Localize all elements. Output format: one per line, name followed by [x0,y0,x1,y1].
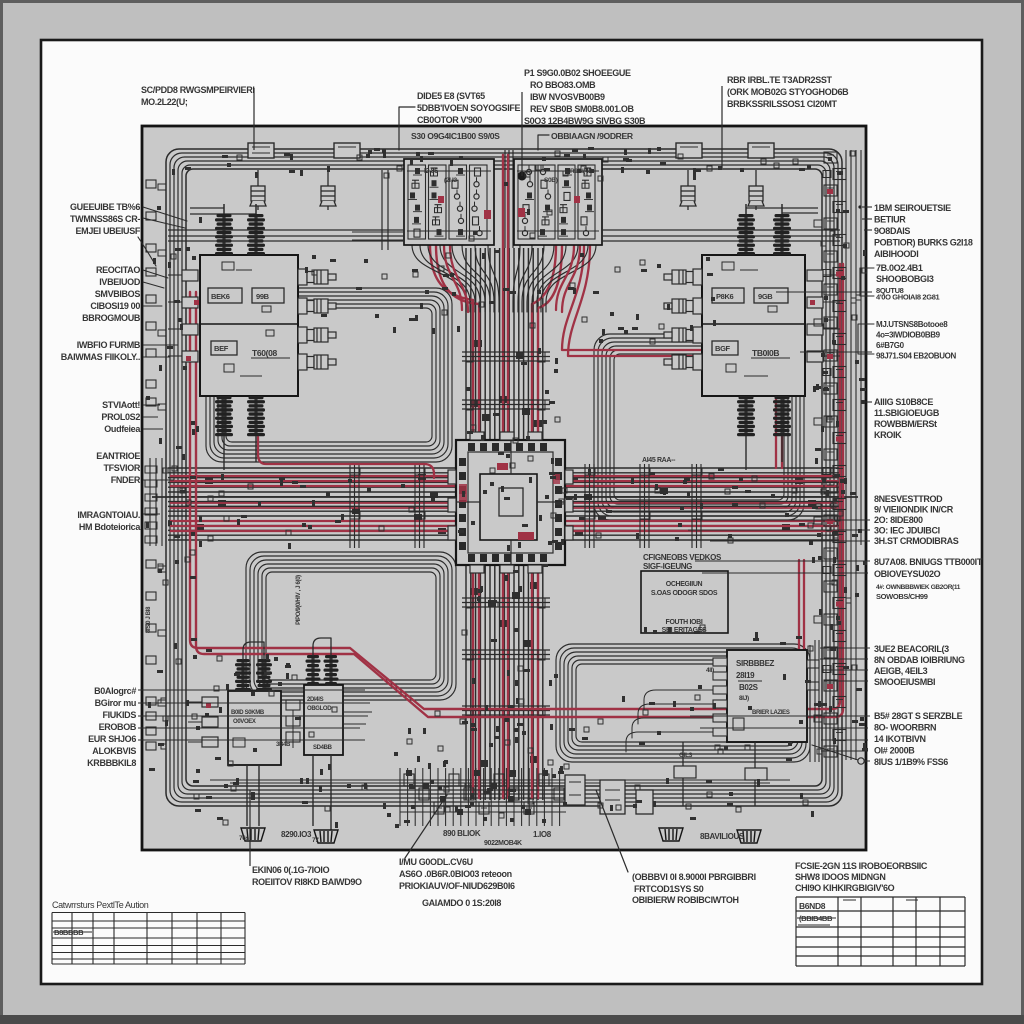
svg-text:14 IKOTBIVN: 14 IKOTBIVN [874,734,926,744]
svg-text:SD4BB: SD4BB [313,745,333,751]
svg-text:BGiror mu: BGiror mu [95,698,136,708]
svg-text:P1 S9G0.0B02 SHOEEGUE: P1 S9G0.0B02 SHOEEGUE [524,68,631,78]
svg-text:AIBIHOODI: AIBIHOODI [874,249,918,259]
svg-text:RO BBO83.OMB: RO BBO83.OMB [530,80,596,90]
svg-text:8NESVESTTROD: 8NESVESTTROD [874,494,943,504]
svg-text:SHOOBOBGI3: SHOOBOBGI3 [876,274,934,284]
svg-text:8IS/0 J BI8: 8IS/0 J BI8 [146,606,152,633]
svg-text:TWMNSS86S CR-: TWMNSS86S CR- [70,214,140,224]
svg-text:2O: 8IDE800: 2O: 8IDE800 [874,515,923,525]
svg-text:TFSVIOR: TFSVIOR [103,463,140,473]
svg-text:IMRAGNTOIAU.: IMRAGNTOIAU. [77,510,140,520]
svg-text:28I19: 28I19 [736,671,755,680]
svg-text:FIUKIDS: FIUKIDS [102,710,136,720]
svg-text:B02S: B02S [739,683,759,692]
svg-text:ROWBBM/ERSt: ROWBBM/ERSt [874,419,937,429]
svg-text:6#B7G0: 6#B7G0 [876,341,905,350]
svg-text:9022MOB4K: 9022MOB4K [484,840,522,847]
svg-text:DIDE5 E8 (SVT65: DIDE5 E8 (SVT65 [417,91,485,101]
svg-text:SIGF-IGEUNG: SIGF-IGEUNG [643,562,692,571]
svg-text:TB0I0B: TB0I0B [752,348,779,358]
svg-text:FOUTH IOBI: FOUTH IOBI [666,619,703,626]
svg-text:BETIUR: BETIUR [874,215,906,225]
svg-text:4#: OWNBBBWIEK GB2OR(11: 4#: OWNBBBWIEK GB2OR(11 [876,584,961,591]
svg-text:8U7A08. BNIUGS TTB000IT: 8U7A08. BNIUGS TTB000IT [874,557,983,567]
svg-text:S0O3 12B4BW9G SIVBG S30B: S0O3 12B4BW9G SIVBG S30B [524,116,646,126]
svg-text:BRIER LAZIES: BRIER LAZIES [752,710,790,716]
svg-text:SOWOBS/CH99: SOWOBS/CH99 [876,592,928,601]
svg-text:2DI4IS: 2DI4IS [307,697,324,703]
svg-text:Oudfeiea: Oudfeiea [104,424,141,434]
svg-text:(ORK MOB02G STYOGHOD6B: (ORK MOB02G STYOGHOD6B [727,87,849,97]
svg-text:EANTRIOE: EANTRIOE [96,451,140,461]
svg-text:9O8DAIS: 9O8DAIS [874,226,910,236]
svg-text:8O- WOORBRN: 8O- WOORBRN [874,723,936,733]
svg-text:Catwrrsturs PextlTe Aution: Catwrrsturs PextlTe Aution [52,900,149,910]
svg-text:11.SBIGIOEUGB: 11.SBIGIOEUGB [874,408,940,418]
svg-text:PIPO/9(0/HIV , J 6(0): PIPO/9(0/HIV , J 6(0) [296,575,302,625]
svg-text:8N OBDAB IOIBRIUNG: 8N OBDAB IOIBRIUNG [874,655,965,665]
svg-text:EKIN06 0(.1G-7IOIO: EKIN06 0(.1G-7IOIO [252,865,330,875]
svg-text:T60(08: T60(08 [252,348,277,358]
svg-text:FRTCOD1SYS S0: FRTCOD1SYS S0 [634,884,704,894]
svg-text:7B.0O2.4B1: 7B.0O2.4B1 [876,263,923,273]
svg-text:BRBKSSRILSSOS1 CI20MT: BRBKSSRILSSOS1 CI20MT [727,99,838,109]
svg-text:I/MU G0ODL.CV6U: I/MU G0ODL.CV6U [399,857,473,867]
svg-text:B6ND8: B6ND8 [799,901,826,911]
svg-text:O0VOEX: O0VOEX [233,719,256,725]
svg-text:8IJ): 8IJ) [739,695,749,702]
svg-text:PROL0S2: PROL0S2 [101,412,140,422]
svg-text:GIL3: GIL3 [679,752,693,759]
svg-text:77: 77 [312,837,319,844]
svg-text:SMVBIBOS: SMVBIBOS [95,289,141,299]
svg-text:I2 86: I2 86 [424,168,438,175]
svg-text:3UE2 BEACORIL(3: 3UE2 BEACORIL(3 [874,644,949,654]
svg-text:AS6O .0B6R.0BIO03 reteoon: AS6O .0B6R.0BIO03 reteoon [399,869,512,879]
svg-text:OBIOVEYSU02O: OBIOVEYSU02O [874,569,941,579]
svg-text:REV SB0B SM0B8.001.OB: REV SB0B SM0B8.001.OB [530,104,635,114]
svg-text:8IUS 1/1B9% FSS6: 8IUS 1/1B9% FSS6 [874,757,948,767]
svg-text:SC/PDD8 RWGSMPEIRVIERI: SC/PDD8 RWGSMPEIRVIERI [141,85,255,95]
svg-text:76s: 76s [239,835,250,842]
svg-text:5DBB'IVOEN SOYOGSIFE: 5DBB'IVOEN SOYOGSIFE [417,103,521,113]
svg-text:KRBBBKIL8: KRBBBKIL8 [87,758,136,768]
svg-text:BEF: BEF [214,344,229,353]
svg-text:CB0OTOR V'900: CB0OTOR V'900 [417,115,482,125]
svg-text:ALOKBVIS: ALOKBVIS [92,746,136,756]
svg-text:P8K6: P8K6 [716,292,734,301]
svg-text:AEIGB, 4EIL3: AEIGB, 4EIL3 [874,666,928,676]
svg-text:OBGLOD: OBGLOD [307,706,332,712]
svg-text:ROEIITOV RI8KD BAIWD9O: ROEIITOV RI8KD BAIWD9O [252,877,362,887]
svg-text:3O: IEC JDUIBCI: 3O: IEC JDUIBCI [874,526,940,536]
svg-text:BGF: BGF [715,344,731,353]
svg-text:1BM SEIROUETSIE: 1BM SEIROUETSIE [874,203,951,213]
svg-text:POBTIOR) BURKS G2I18: POBTIOR) BURKS G2I18 [874,238,973,248]
svg-text:890 BLIOK: 890 BLIOK [443,829,481,838]
svg-text:B5# 28GT S SERZBLE: B5# 28GT S SERZBLE [874,711,963,721]
svg-text:SHW8 IDOOS MIDNGN: SHW8 IDOOS MIDNGN [795,872,886,882]
svg-text:EUR SHJO6: EUR SHJO6 [88,734,136,744]
svg-text:OI# 2000B: OI# 2000B [874,746,915,756]
svg-text:S0B): S0B) [544,177,558,184]
svg-text:REOCITAO: REOCITAO [96,265,140,275]
svg-text:CHI9O KIHKIRGBIGIV'6O: CHI9O KIHKIRGBIGIV'6O [795,883,895,893]
svg-text:CIBOSI19 00: CIBOSI19 00 [90,301,140,311]
svg-text:FNDER: FNDER [111,475,141,485]
svg-text:AIIIG S10B8CE: AIIIG S10B8CE [874,397,933,407]
svg-text:KROIK: KROIK [874,430,902,440]
svg-text:PRIOKIAUV/OF-NIUD629B0I6: PRIOKIAUV/OF-NIUD629B0I6 [399,881,515,891]
svg-text:OBBIAAGN /9ODRER: OBBIAAGN /9ODRER [551,131,634,141]
svg-text:9GB: 9GB [758,292,773,301]
svg-text:SMOOEIUSMBI: SMOOEIUSMBI [874,677,935,687]
svg-text:OCHEGIIUN: OCHEGIIUN [666,581,703,588]
svg-text:4o=3IWDIOB0BB9: 4o=3IWDIOB0BB9 [876,331,941,340]
svg-text:98J71.S04 EB2OBUON: 98J71.S04 EB2OBUON [876,352,957,361]
svg-text:S30 O9G4IC1B00 S9/0S: S30 O9G4IC1B00 S9/0S [411,131,500,141]
svg-text:B0ID S0KMB: B0ID S0KMB [231,710,265,716]
svg-text:SIRBBBEZ: SIRBBBEZ [736,659,775,668]
svg-text:(OBBBVI 0I 8.9000I PBRGIBBRI: (OBBBVI 0I 8.9000I PBRGIBBRI [632,872,756,882]
svg-text:4II): 4II) [706,667,714,674]
svg-text:1.IO8: 1.IO8 [533,830,552,839]
svg-text:4'0O GHOIAI8 2G81: 4'0O GHOIAI8 2G81 [876,293,940,302]
svg-text:EROBOB: EROBOB [99,722,137,732]
svg-text:HM Bdoteiorica: HM Bdoteiorica [79,522,141,532]
svg-text:EMJEI UBEIUSF: EMJEI UBEIUSF [76,226,141,236]
svg-text:IBW NVOSVB00B9: IBW NVOSVB00B9 [530,92,605,102]
svg-text:(2I I3: (2I I3 [444,177,457,184]
svg-text:8290.IO3: 8290.IO3 [281,830,312,839]
svg-text:AI45 RAA--: AI45 RAA-- [642,457,676,464]
svg-text:FCSIE-2GN 11S IROBOEORBSIIC: FCSIE-2GN 11S IROBOEORBSIIC [795,861,928,871]
svg-text:RBR IRBL.TE T3ADR2SST: RBR IRBL.TE T3ADR2SST [727,75,833,85]
svg-text:BBROGMOUB: BBROGMOUB [82,313,141,323]
svg-text:IWBFIO FURMB: IWBFIO FURMB [77,340,141,350]
svg-text:BAIWMAS FIIKOLY..: BAIWMAS FIIKOLY.. [61,352,140,362]
svg-text:8BAVILIOUS: 8BAVILIOUS [700,832,745,841]
svg-text:99B: 99B [256,292,270,301]
svg-text:BEK6: BEK6 [211,292,230,301]
svg-text:9/ VIEIIONDIK IN/CR: 9/ VIEIIONDIK IN/CR [874,505,954,515]
svg-text:MJ.UTSNS8Botooe8: MJ.UTSNS8Botooe8 [876,320,948,329]
svg-text:OBIBIERW ROBIBCIWTOH: OBIBIERW ROBIBCIWTOH [632,895,739,905]
svg-text:GAIAMDO 0 1S:20I8: GAIAMDO 0 1S:20I8 [422,898,501,908]
svg-text:3B4B: 3B4B [276,742,291,748]
svg-text:3H.ST CRMODIBRAS: 3H.ST CRMODIBRAS [874,536,959,546]
svg-text:B0Alogrc#: B0Alogrc# [94,686,136,696]
svg-text:IVBEIUOD: IVBEIUOD [99,277,141,287]
svg-text:GUEEUIBE TB%6: GUEEUIBE TB%6 [70,202,140,212]
svg-text:S.OAS ODOGR SDOS: S.OAS ODOGR SDOS [651,590,718,597]
svg-text:STVIAott!: STVIAott! [102,400,140,410]
svg-text:MO.2L22(U;: MO.2L22(U; [141,97,188,107]
